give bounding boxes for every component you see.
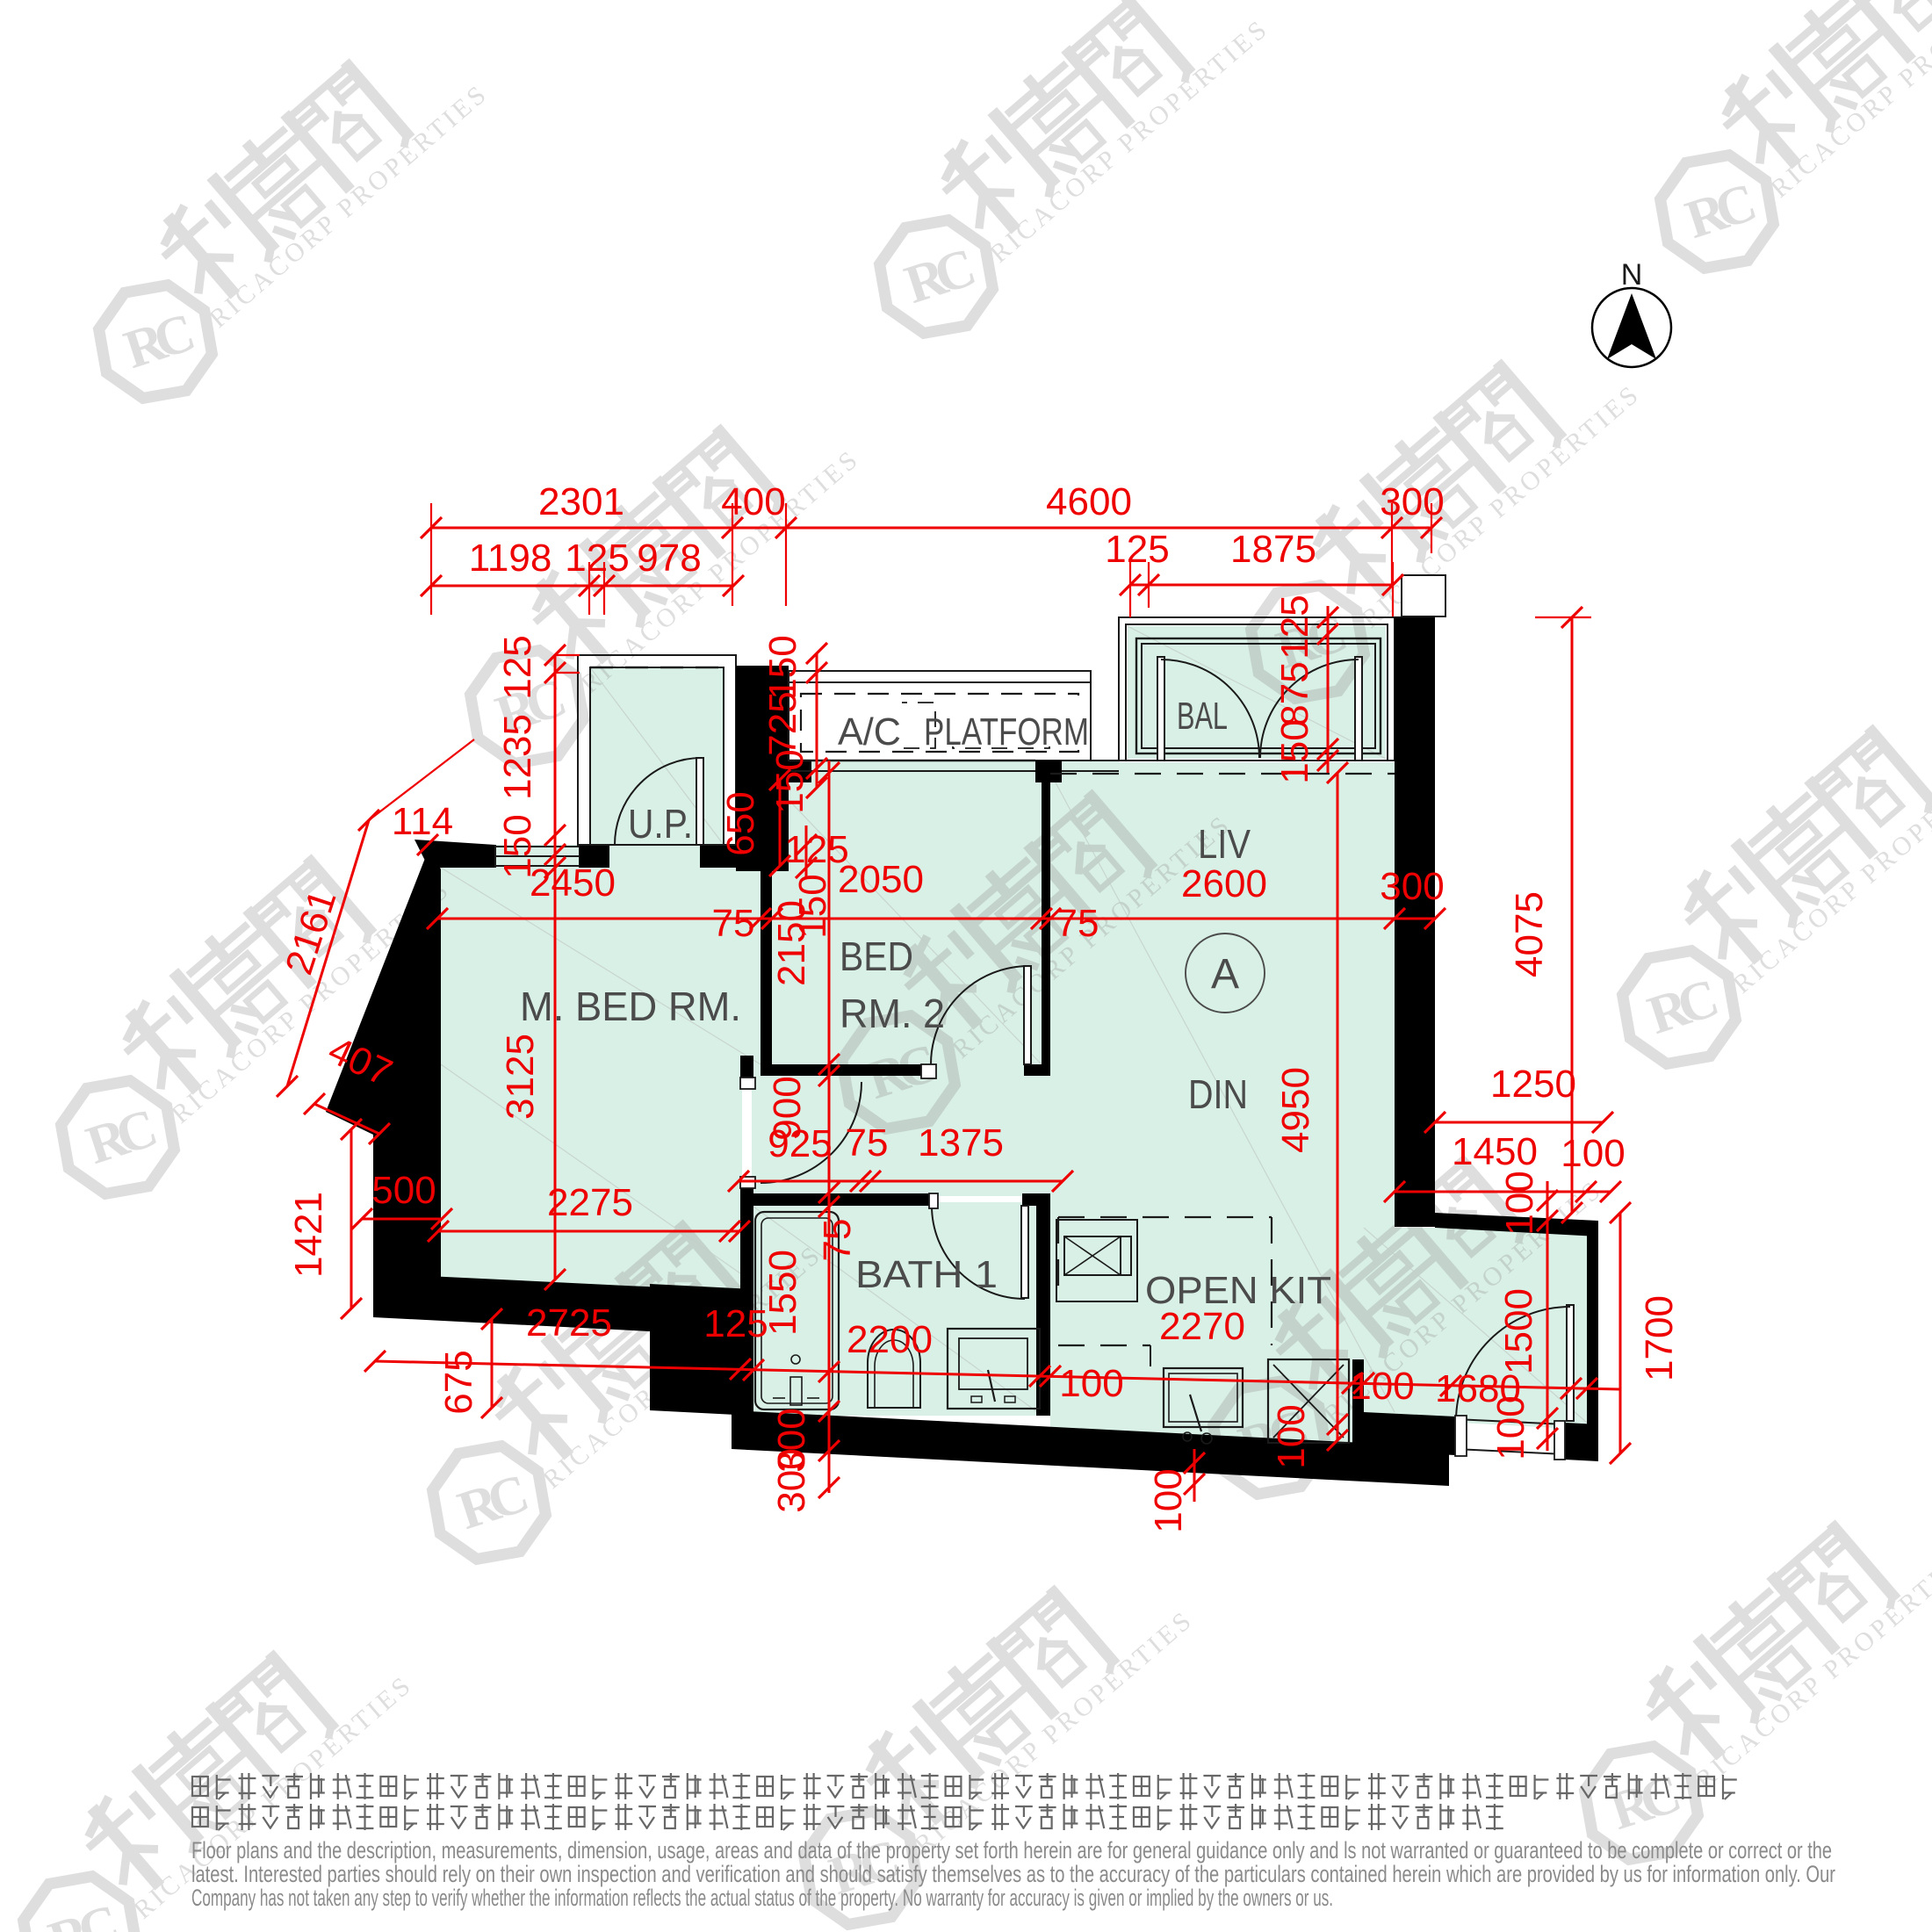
svg-text:650: 650 xyxy=(719,791,762,855)
svg-text:2270: 2270 xyxy=(1159,1305,1245,1348)
svg-text:LIV: LIV xyxy=(1198,821,1251,867)
svg-text:125: 125 xyxy=(1273,595,1316,659)
svg-text:2150: 2150 xyxy=(770,900,813,986)
svg-text:N: N xyxy=(1621,258,1643,292)
svg-text:150: 150 xyxy=(1273,719,1316,783)
svg-text:300: 300 xyxy=(1380,480,1444,523)
svg-text:1421: 1421 xyxy=(287,1192,330,1278)
svg-text:100: 100 xyxy=(1147,1468,1190,1532)
svg-text:1250: 1250 xyxy=(1490,1063,1576,1106)
svg-text:100: 100 xyxy=(1561,1132,1625,1175)
svg-text:2450: 2450 xyxy=(530,861,616,905)
svg-text:2200: 2200 xyxy=(847,1318,933,1361)
svg-text:4950: 4950 xyxy=(1274,1067,1317,1153)
svg-text:150: 150 xyxy=(496,814,539,878)
svg-text:Company has not taken any step: Company has not taken any step to verify… xyxy=(191,1885,1333,1911)
svg-text:4075: 4075 xyxy=(1508,891,1551,977)
svg-text:75: 75 xyxy=(712,902,755,945)
svg-text:300: 300 xyxy=(770,1448,813,1512)
svg-text:RM. 2: RM. 2 xyxy=(840,991,945,1036)
svg-text:1375: 1375 xyxy=(918,1121,1004,1164)
svg-text:BATH 1: BATH 1 xyxy=(855,1253,998,1296)
svg-text:1235: 1235 xyxy=(496,714,539,800)
svg-text:2725: 2725 xyxy=(526,1301,612,1344)
svg-text:2050: 2050 xyxy=(838,858,924,901)
svg-text:75: 75 xyxy=(816,1219,859,1262)
svg-text:150: 150 xyxy=(761,635,804,699)
svg-text:125: 125 xyxy=(703,1302,768,1345)
svg-text:100: 100 xyxy=(1059,1362,1123,1405)
svg-text:M. BED RM.: M. BED RM. xyxy=(520,984,741,1029)
svg-text:500: 500 xyxy=(371,1169,436,1212)
svg-text:4600: 4600 xyxy=(1046,480,1132,523)
svg-text:1680: 1680 xyxy=(1435,1367,1521,1410)
svg-text:725: 725 xyxy=(761,691,804,755)
svg-text:A/C: A/C xyxy=(838,710,901,753)
svg-text:150: 150 xyxy=(768,749,811,813)
svg-text:1875: 1875 xyxy=(1230,528,1316,571)
svg-text:latest. Interested parties sho: latest. Interested parties should rely o… xyxy=(191,1861,1835,1887)
svg-text:BED: BED xyxy=(840,934,913,979)
svg-text:100: 100 xyxy=(1270,1404,1313,1468)
svg-text:400: 400 xyxy=(721,480,785,523)
svg-text:75: 75 xyxy=(1056,902,1099,945)
svg-text:BAL: BAL xyxy=(1177,695,1228,738)
svg-text:125: 125 xyxy=(496,635,539,699)
svg-text:125: 125 xyxy=(1105,528,1169,571)
svg-text:2275: 2275 xyxy=(547,1181,633,1224)
svg-text:1198: 1198 xyxy=(469,537,552,580)
svg-text:875: 875 xyxy=(1273,661,1316,725)
svg-text:925: 925 xyxy=(768,1122,832,1165)
svg-text:PLATFORM: PLATFORM xyxy=(924,710,1089,753)
svg-text:U.P.: U.P. xyxy=(628,801,693,847)
svg-text:125: 125 xyxy=(565,537,629,580)
svg-text:1450: 1450 xyxy=(1452,1130,1538,1173)
svg-text:100: 100 xyxy=(1350,1365,1414,1408)
svg-text:2600: 2600 xyxy=(1181,862,1267,905)
svg-text:3125: 3125 xyxy=(499,1034,542,1120)
svg-text:978: 978 xyxy=(637,537,701,580)
svg-text:114: 114 xyxy=(392,800,453,843)
svg-text:300: 300 xyxy=(1380,865,1444,908)
svg-text:2301: 2301 xyxy=(538,480,624,523)
svg-text:75: 75 xyxy=(846,1121,889,1164)
svg-text:675: 675 xyxy=(437,1350,480,1414)
svg-text:Floor plans and the descriptio: Floor plans and the description, measure… xyxy=(191,1837,1832,1864)
svg-text:A: A xyxy=(1211,951,1239,998)
svg-text:DIN: DIN xyxy=(1188,1071,1248,1117)
svg-text:1700: 1700 xyxy=(1638,1295,1681,1381)
svg-text:100: 100 xyxy=(1498,1171,1541,1235)
svg-text:1500: 1500 xyxy=(1497,1288,1540,1374)
